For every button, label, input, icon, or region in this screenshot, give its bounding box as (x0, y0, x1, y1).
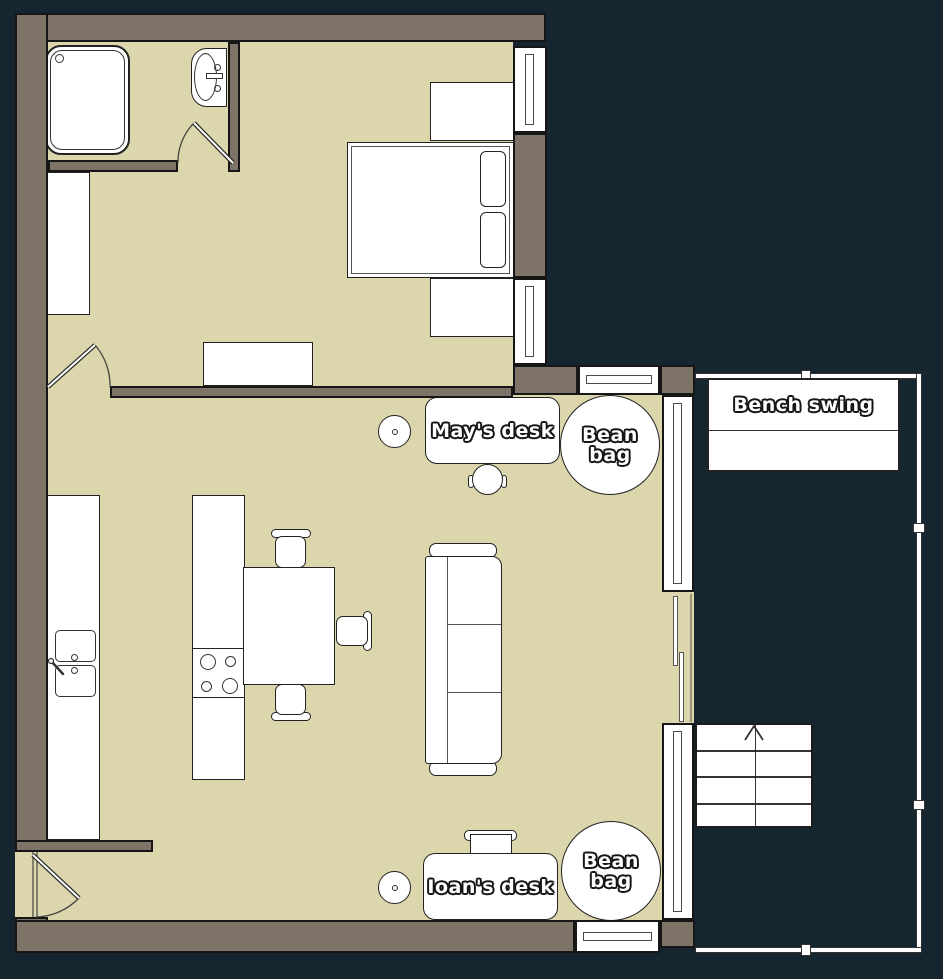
window-living-right-lower[interactable] (662, 723, 694, 920)
wall-bedroom-divider (110, 386, 513, 398)
kitchen-sink-drain (71, 667, 78, 674)
desk-chair[interactable] (472, 464, 503, 495)
wall-living-top-post (660, 365, 695, 395)
stair-step-line (697, 776, 811, 778)
railing-joint (801, 944, 811, 956)
burner-small (225, 656, 236, 667)
window-glass (583, 932, 652, 941)
bench-swing-seat-line (709, 430, 898, 431)
window-living-right-upper[interactable] (662, 395, 694, 592)
wall-top (15, 13, 546, 42)
terrace-railing-right (916, 373, 922, 953)
desk-may[interactable]: May's desk (425, 397, 560, 464)
dresser-bottom[interactable] (430, 278, 515, 337)
sofa-cushion-line (447, 624, 501, 625)
window-glass (586, 375, 652, 384)
shower-tray[interactable] (45, 45, 130, 155)
stair-center-rail (755, 725, 756, 826)
window-glass (525, 286, 534, 357)
dining-table[interactable] (243, 567, 335, 685)
window-bedroom-1[interactable] (513, 46, 547, 133)
kitchen-counter[interactable] (47, 495, 100, 840)
cooktop (192, 648, 245, 698)
burner-small (201, 681, 212, 692)
stool[interactable] (378, 415, 411, 448)
bathroom-sink[interactable] (191, 48, 227, 107)
window-glass (673, 403, 682, 584)
bean-bag-bottom[interactable]: Bean bag (561, 821, 661, 921)
dining-chair[interactable] (336, 616, 368, 646)
wall-living-top-left (513, 365, 578, 395)
bench-swing-label: Bench swing (709, 380, 898, 430)
shower-inner-rim (50, 50, 125, 150)
desk-ioan[interactable]: Ioan's desk (423, 853, 558, 920)
closet[interactable] (47, 172, 90, 315)
sofa[interactable] (425, 556, 502, 764)
sofa-cushion-line (447, 692, 501, 693)
railing-joint (913, 523, 925, 533)
railing-joint (913, 800, 925, 810)
stool-center-dot (392, 885, 398, 891)
stool[interactable] (378, 871, 411, 904)
stairs[interactable] (695, 723, 813, 828)
sink-knob (214, 85, 221, 92)
sink-faucet (206, 73, 223, 79)
bench-swing[interactable]: Bench swing (707, 378, 900, 472)
double-bed[interactable] (347, 142, 517, 278)
pillow (480, 212, 506, 268)
burner-large (222, 678, 238, 694)
wall-bathroom-bottom (48, 160, 178, 172)
wall-bedroom-right-mid (513, 133, 547, 278)
sideboard[interactable] (203, 342, 313, 386)
pillow (480, 151, 506, 207)
kitchen-sink-drain (71, 654, 78, 661)
burner-large (200, 654, 216, 670)
wall-bottom (15, 920, 575, 953)
stair-step-line (697, 803, 811, 805)
window-glass (525, 54, 534, 125)
window-glass (673, 731, 682, 912)
sliding-door-panel[interactable] (679, 652, 684, 722)
sofa-back-line (447, 557, 448, 763)
sliding-door-edge (690, 594, 692, 722)
wall-left (15, 13, 48, 852)
stair-step-line (697, 750, 811, 752)
bean-bag-top[interactable]: Bean bag (560, 395, 660, 495)
wall-bathroom-right (228, 42, 240, 172)
floor-plan-canvas: Bench swing (0, 0, 943, 979)
dresser-top[interactable] (430, 82, 515, 141)
window-bottom[interactable] (575, 920, 660, 953)
shower-drain (55, 54, 64, 63)
wall-bottom-right-post (660, 920, 695, 948)
dining-chair[interactable] (275, 536, 306, 568)
window-bedroom-2[interactable] (513, 278, 547, 365)
dining-chair[interactable] (275, 684, 306, 715)
stool-center-dot (392, 429, 398, 435)
desk-chair[interactable] (470, 834, 512, 854)
sliding-door-panel[interactable] (673, 596, 678, 666)
kitchen-island[interactable] (192, 495, 245, 780)
floor-entrance-doorway (15, 852, 48, 917)
sink-knob (214, 64, 221, 71)
wall-kitchen-stub (15, 840, 153, 852)
window-living-top[interactable] (578, 365, 660, 395)
